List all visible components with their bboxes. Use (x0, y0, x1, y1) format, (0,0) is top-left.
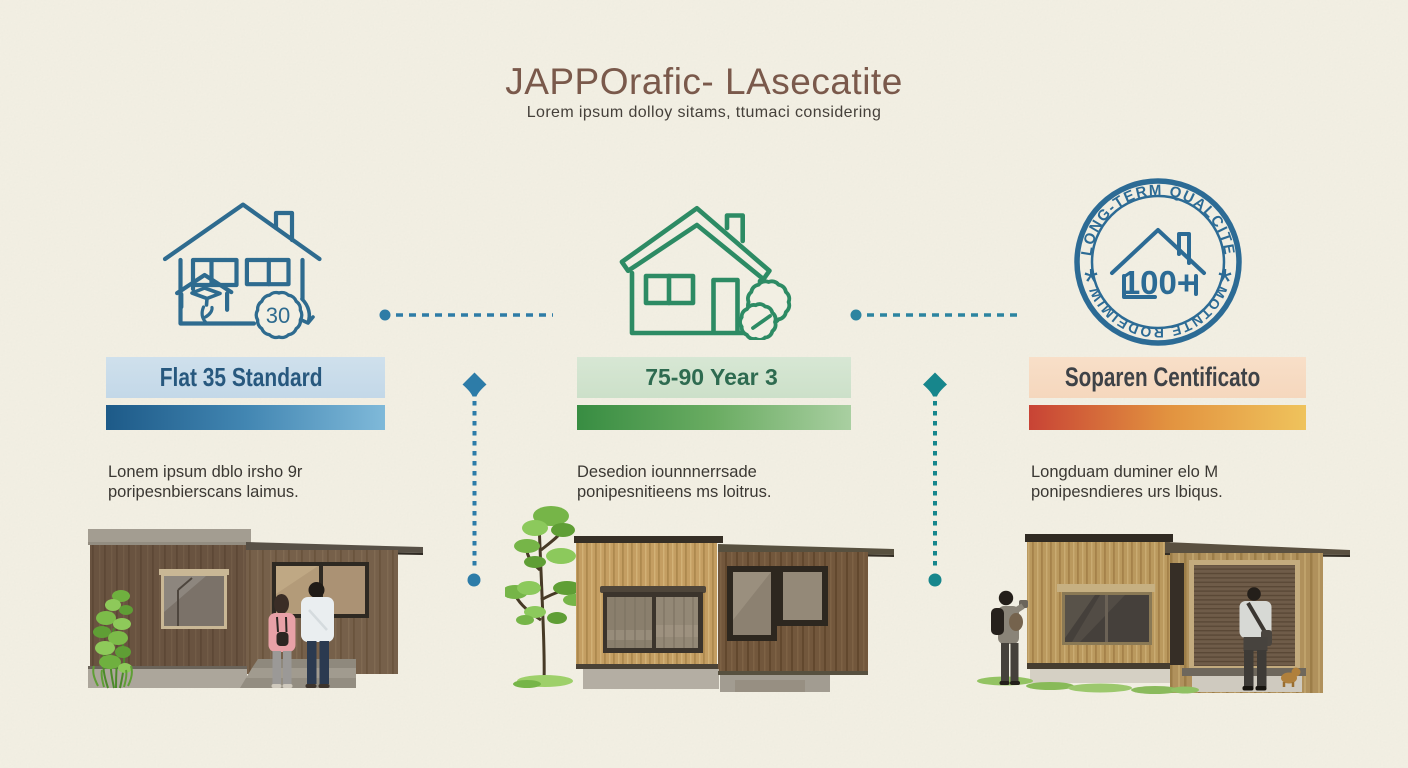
svg-text:*: * (1084, 261, 1098, 302)
svg-text:100+: 100+ (1122, 264, 1196, 301)
svg-text:*: * (1218, 261, 1232, 302)
svg-text:30: 30 (266, 303, 290, 328)
svg-text:LONG-TERM QUALCITE: LONG-TERM QUALCITE (1078, 182, 1238, 257)
